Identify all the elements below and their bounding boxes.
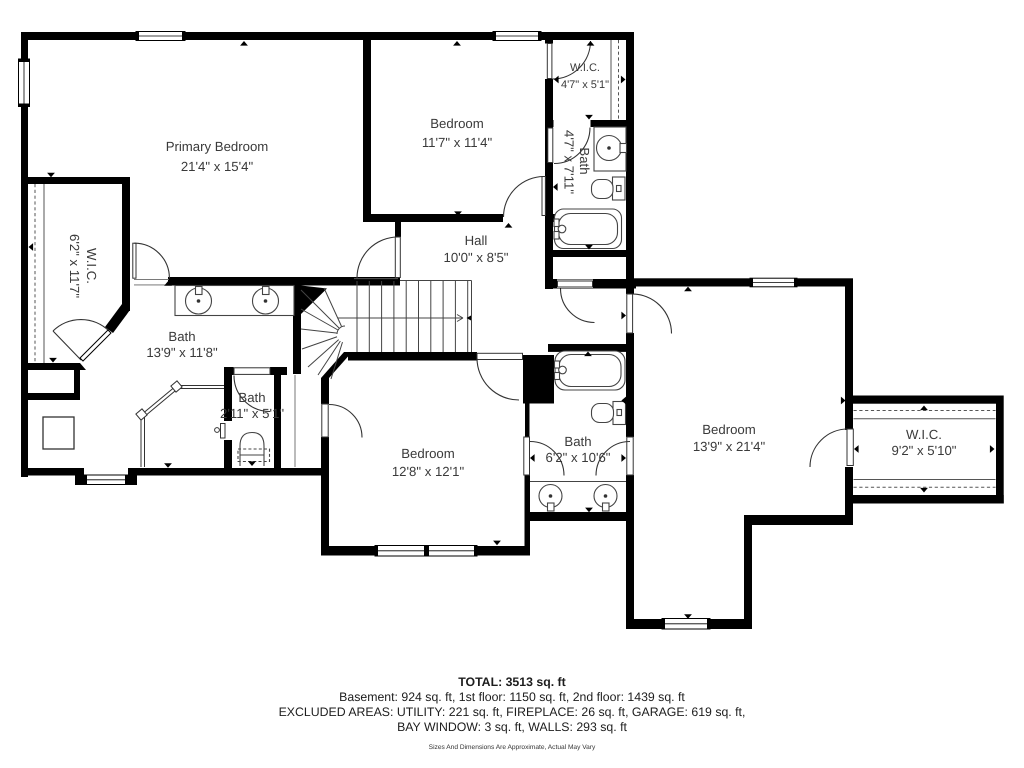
svg-text:W.I.C.: W.I.C. xyxy=(906,427,942,442)
svg-text:21'4" x 15'4": 21'4" x 15'4" xyxy=(181,159,254,174)
svg-text:9'2" x 5'10": 9'2" x 5'10" xyxy=(892,443,957,458)
svg-text:Bath: Bath xyxy=(564,434,591,449)
svg-text:4'7" x 7'11": 4'7" x 7'11" xyxy=(562,130,577,194)
svg-text:Bedroom: Bedroom xyxy=(702,422,756,437)
svg-text:Hall: Hall xyxy=(465,233,488,248)
svg-text:2'11" x 5'1": 2'11" x 5'1" xyxy=(220,406,284,421)
svg-text:Bedroom: Bedroom xyxy=(401,446,455,461)
svg-text:4'7" x 5'1": 4'7" x 5'1" xyxy=(561,79,609,91)
svg-text:Basement: 924 sq. ft, 1st floo: Basement: 924 sq. ft, 1st floor: 1150 sq… xyxy=(339,690,685,704)
svg-text:Bath: Bath xyxy=(238,390,265,405)
svg-text:13'9" x 21'4": 13'9" x 21'4" xyxy=(693,439,766,454)
svg-text:BAY WINDOW: 3 sq. ft, WALLS: 2: BAY WINDOW: 3 sq. ft, WALLS: 293 sq. ft xyxy=(397,720,627,734)
svg-text:6'2" x 11'7": 6'2" x 11'7" xyxy=(67,234,82,298)
svg-text:TOTAL: 3513 sq. ft: TOTAL: 3513 sq. ft xyxy=(458,675,566,689)
svg-text:12'8" x 12'1": 12'8" x 12'1" xyxy=(392,464,465,479)
svg-text:EXCLUDED AREAS: UTILITY: 221 s: EXCLUDED AREAS: UTILITY: 221 sq. ft, FIR… xyxy=(279,705,746,719)
svg-text:W.I.C.: W.I.C. xyxy=(84,248,99,284)
svg-text:Bath: Bath xyxy=(168,329,195,344)
svg-text:Sizes And Dimensions Are Appro: Sizes And Dimensions Are Approximate, Ac… xyxy=(429,744,596,751)
svg-text:11'7" x 11'4": 11'7" x 11'4" xyxy=(422,135,493,150)
svg-text:Bedroom: Bedroom xyxy=(430,116,484,131)
svg-text:10'0" x 8'5": 10'0" x 8'5" xyxy=(444,250,509,265)
svg-text:Primary Bedroom: Primary Bedroom xyxy=(166,139,269,154)
svg-text:Bath: Bath xyxy=(577,147,592,174)
svg-text:W.I.C.: W.I.C. xyxy=(570,62,600,74)
svg-text:6'2" x 10'6": 6'2" x 10'6" xyxy=(546,450,611,465)
svg-text:13'9" x 11'8": 13'9" x 11'8" xyxy=(146,345,218,360)
